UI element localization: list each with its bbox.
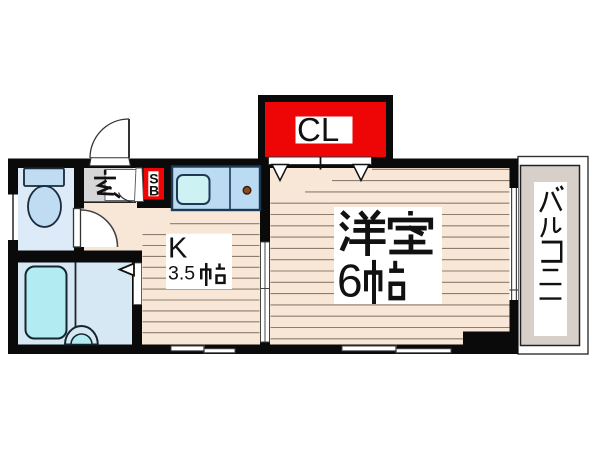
- svg-text:CL: CL: [297, 111, 339, 148]
- svg-text:B: B: [149, 183, 159, 199]
- svg-text:K: K: [168, 233, 188, 265]
- svg-text:3.5: 3.5: [168, 262, 195, 284]
- svg-text:6: 6: [337, 255, 363, 307]
